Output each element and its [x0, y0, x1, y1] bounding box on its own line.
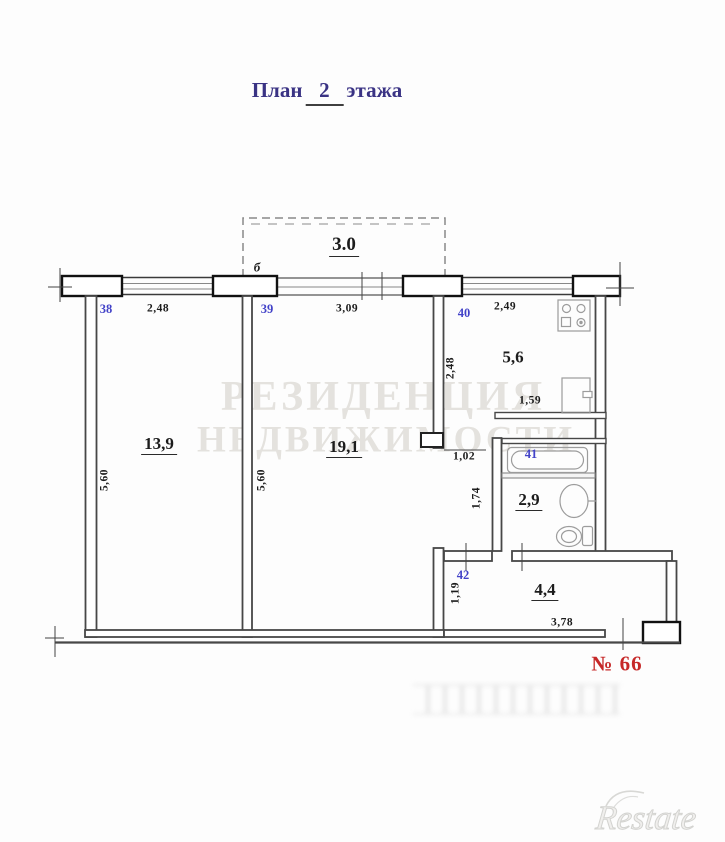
- room-number-label: 38: [100, 303, 113, 316]
- washbasin-icon: [560, 485, 596, 518]
- bathtub-edge: [502, 473, 595, 478]
- floor-plan-page: РЕЗИДЕНЦИЯ НЕДВИЖИМОСТИ: [0, 0, 725, 842]
- room-number-label: 39: [261, 303, 274, 316]
- wall-pier: [62, 276, 620, 296]
- room-area-label: 13,9: [141, 435, 177, 455]
- dimension-label: 1,19: [450, 582, 462, 604]
- balcony-area-label: 3.0: [329, 235, 359, 257]
- window: [122, 278, 213, 295]
- dimension-label: 2,48: [147, 303, 169, 315]
- dimension-label: 2,48: [445, 357, 457, 379]
- dimension-label: 5,60: [99, 469, 111, 491]
- plan-title-word1: План: [252, 78, 303, 102]
- bathtub-icon: [508, 448, 588, 473]
- floor-plan-drawing: [0, 0, 725, 842]
- room-area-label: 4,4: [531, 581, 558, 601]
- plan-title-floor-number: 2: [305, 78, 343, 106]
- plan-title: План2этажа: [252, 78, 403, 106]
- room-number-label: 41: [525, 448, 538, 461]
- plan-title-word2: этажа: [346, 78, 402, 102]
- room-area-label: 19,1: [326, 438, 362, 458]
- balcony-door-marker: б: [254, 261, 261, 274]
- room-area-label: 5,6: [502, 349, 523, 366]
- dimension-label: 1,59: [519, 395, 541, 407]
- dimension-label: 3,78: [551, 617, 573, 629]
- dimension-label: 3,09: [336, 303, 358, 315]
- dimension-label: 5,60: [256, 469, 268, 491]
- dimension-label: 2,49: [494, 301, 516, 313]
- kitchen-sink-icon: [562, 378, 592, 413]
- room-number-label: 40: [458, 307, 471, 320]
- logo-watermark: Restate: [594, 800, 698, 838]
- dimension-label: 1,02: [453, 451, 475, 463]
- dimension-label: 1,74: [471, 487, 483, 509]
- balcony-door-window: [277, 278, 403, 295]
- window: [462, 278, 573, 295]
- room-area-label: 2,9: [515, 491, 542, 511]
- unit-number-label: № 66: [591, 654, 642, 675]
- room-number-label: 42: [457, 569, 470, 582]
- stove-icon: [558, 300, 590, 331]
- wall-pier: [643, 622, 680, 643]
- toilet-icon: [557, 527, 593, 547]
